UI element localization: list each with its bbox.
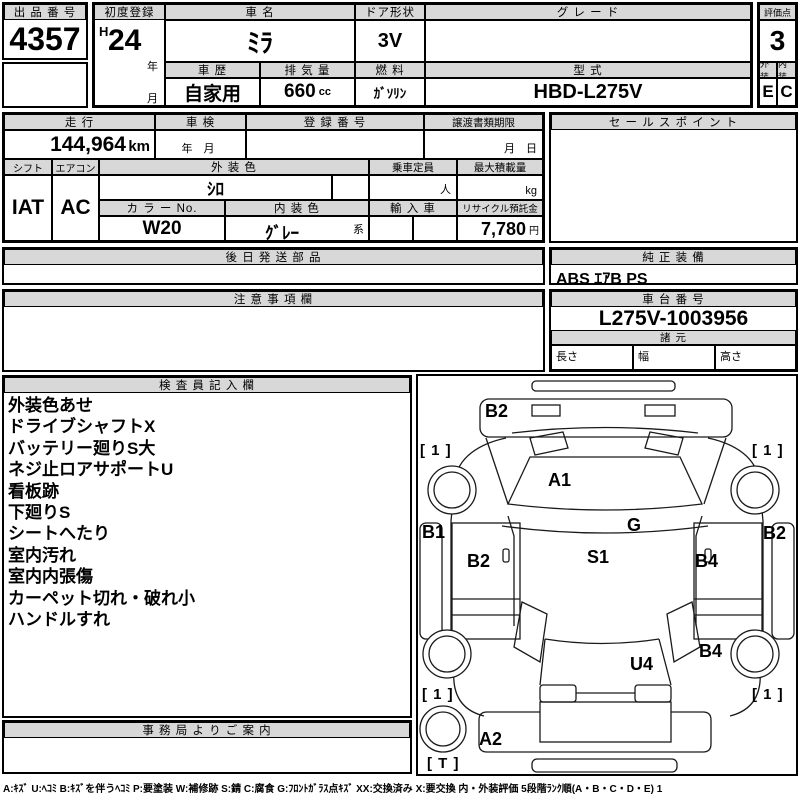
grade-value [425, 20, 751, 62]
history-value: 自家用 [165, 78, 260, 106]
inspection-item: ハンドルすれ [8, 609, 414, 630]
inspection-item: ネジ止ロアサポートU [8, 459, 414, 480]
first-reg-year-unit: 年 [147, 58, 158, 74]
inspection-item: 室内内張傷 [8, 566, 414, 587]
cautions-box: 注 意 事 項 欄 [2, 289, 545, 372]
shaken-label: 車 検 [155, 114, 246, 130]
office-notice-value [4, 738, 410, 772]
inspector-box: 検 査 員 記 入 欄 外装色あせドライブシャフトXバッテリー廻りS大ネジ止ロア… [2, 375, 412, 718]
spec-width-label: 幅 [633, 345, 715, 370]
color-no-value: W20 [99, 216, 225, 241]
damage-mark: B1 [422, 522, 445, 542]
exterior-label: 外装 [759, 62, 777, 78]
door-label: ドア形状 [355, 4, 425, 20]
auction-sheet: 出 品 番 号 4357 初度登録 H 24 年 月 車 名 ﾐﾗ 車 歴 自家… [0, 0, 800, 800]
damage-mark: B4 [699, 641, 722, 661]
first-reg-month-unit: 月 [147, 90, 158, 106]
import-car-label: 輸 入 車 [369, 200, 457, 216]
import-car-cell-2 [413, 216, 457, 241]
damage-diagram-box: B2[ 1 ][ 1 ]A1B1GB2S1B4B2B4U4[ 1 ][ 1 ]A… [416, 374, 798, 776]
model-label: 型 式 [425, 62, 751, 78]
chassis-no-label: 車 台 番 号 [551, 291, 796, 307]
vehicle-header-table: 初度登録 H 24 年 月 車 名 ﾐﾗ 車 歴 自家用 排 気 量 660 c… [92, 2, 753, 108]
inspector-list: 外装色あせドライブシャフトXバッテリー廻りS大ネジ止ロアサポートU看板跡下廻りS… [4, 393, 414, 718]
inspection-item: シートへたり [8, 523, 414, 544]
damage-mark: B2 [485, 401, 508, 421]
cautions-label: 注 意 事 項 欄 [4, 291, 543, 307]
capacity-value: 人 [369, 175, 457, 200]
mileage-value: 144,964 km [4, 130, 155, 159]
recycle-label: リサイクル預託金 [457, 200, 543, 216]
damage-code-legend: A:ｷｽﾞ U:ﾍｺﾐ B:ｷｽﾞを伴うﾍｺﾐ P:要塗装 W:補修跡 S:錆 … [3, 780, 797, 795]
car-name-value: ﾐﾗ [165, 20, 355, 62]
first-reg-value: H 24 年 月 [94, 20, 165, 106]
inspection-item: バッテリー廻りS大 [8, 438, 414, 459]
ext-color-label: 外 装 色 [99, 159, 369, 175]
damage-mark: U4 [630, 654, 653, 674]
specs-label: 諸 元 [551, 330, 796, 345]
office-notice-label: 事 務 局 よ り ご 案 内 [4, 722, 410, 738]
ext-color-extra-cell [332, 175, 369, 200]
sales-point-box: セ ー ル ス ポ イ ン ト [549, 112, 798, 243]
inspection-item: カーペット切れ・破れ小 [8, 588, 414, 609]
mileage-number: 144,964 [50, 133, 126, 157]
recycle-amount: 7,780 [481, 219, 526, 240]
later-parts-label: 後 日 発 送 部 品 [4, 249, 543, 265]
color-no-label: カ ラ ー No. [99, 200, 225, 216]
inspection-item: ドライブシャフトX [8, 416, 414, 437]
inspection-item: 外装色あせ [8, 395, 414, 416]
fuel-value: ｶﾞｿﾘﾝ [355, 78, 425, 106]
inspection-item: 看板跡 [8, 481, 414, 502]
chassis-no-value: L275V-1003956 [551, 307, 796, 330]
inspection-item: 下廻りS [8, 502, 414, 523]
oem-equipment-label: 純 正 装 備 [551, 249, 796, 265]
displacement-unit: cc [319, 86, 331, 98]
damage-mark: A2 [479, 729, 502, 749]
sales-point-label: セ ー ル ス ポ イ ン ト [551, 114, 796, 130]
auction-no-value: 4357 [4, 20, 86, 58]
sales-point-value [551, 130, 796, 241]
recycle-unit: 円 [529, 222, 539, 237]
max-load-value: kg [457, 175, 543, 200]
int-color-label: 内 装 色 [225, 200, 369, 216]
interior-label: 内装 [777, 62, 796, 78]
history-label: 車 歴 [165, 62, 260, 78]
damage-mark: B2 [467, 551, 490, 571]
damage-mark: A1 [548, 470, 571, 490]
auction-no-label: 出 品 番 号 [4, 4, 86, 20]
score-box: 評価点 3 外装 内装 E C [757, 2, 798, 108]
shift-value: IAT [4, 175, 52, 241]
reg-no-value [246, 130, 424, 159]
interior-grade: C [777, 78, 796, 106]
displacement-label: 排 気 量 [260, 62, 355, 78]
first-reg-era: H [99, 24, 108, 39]
chassis-box: 車 台 番 号 L275V-1003956 諸 元 長さ 幅 高さ [549, 289, 798, 372]
damage-mark: B2 [763, 523, 786, 543]
oem-equipment-box: 純 正 装 備 ABS ｴｱB PS [549, 247, 798, 285]
damage-mark: [ 1 ] [752, 442, 784, 459]
info-table: 走 行 144,964 km 車 検 年 月 登 録 番 号 譲渡書類期限 月 … [2, 112, 545, 243]
inspector-label: 検 査 員 記 入 欄 [4, 377, 410, 393]
reg-no-label: 登 録 番 号 [246, 114, 424, 130]
int-color-value: ｸﾞﾚｰ 系 [225, 216, 369, 241]
import-car-cell-1 [369, 216, 413, 241]
mileage-label: 走 行 [4, 114, 155, 130]
int-color-name: ｸﾞﾚｰ [226, 219, 338, 241]
score-value: 3 [759, 20, 796, 62]
transfer-docs-label: 譲渡書類期限 [424, 114, 543, 130]
damage-mark: [ T ] [427, 755, 460, 772]
shaken-value: 年 月 [155, 130, 246, 159]
spec-height-label: 高さ [715, 345, 796, 370]
int-color-suffix: 系 [353, 221, 364, 237]
damage-mark: [ 1 ] [752, 686, 784, 703]
aircon-label: エアコン [52, 159, 99, 175]
aircon-value: AC [52, 175, 99, 241]
office-notice-box: 事 務 局 よ り ご 案 内 [2, 720, 412, 774]
ext-color-value: ｼﾛ [99, 175, 332, 200]
capacity-label: 乗車定員 [369, 159, 457, 175]
door-value: 3V [355, 20, 425, 62]
damage-mark: B4 [695, 551, 718, 571]
car-top-view-diagram: B2[ 1 ][ 1 ]A1B1GB2S1B4B2B4U4[ 1 ][ 1 ]A… [418, 376, 796, 774]
mileage-unit: km [128, 138, 150, 155]
transfer-docs-value: 月 日 [424, 130, 543, 159]
auction-no-box: 出 品 番 号 4357 [2, 2, 88, 60]
first-reg-year: 24 [108, 24, 141, 58]
displacement-number: 660 [284, 81, 316, 103]
cautions-value [4, 307, 543, 370]
fuel-label: 燃 料 [355, 62, 425, 78]
later-parts-value [4, 265, 543, 283]
car-name-label: 車 名 [165, 4, 355, 20]
auction-no-empty-box [2, 62, 88, 108]
model-value: HBD-L275V [425, 78, 751, 106]
first-reg-label: 初度登録 [94, 4, 165, 20]
shift-label: シフト [4, 159, 52, 175]
damage-mark: [ 1 ] [422, 686, 454, 703]
recycle-value: 7,780 円 [457, 216, 543, 241]
grade-label: グ レ ー ド [425, 4, 751, 20]
spec-length-label: 長さ [551, 345, 633, 370]
score-label: 評価点 [759, 4, 796, 20]
displacement-value: 660 cc [260, 78, 355, 106]
oem-equipment-value: ABS ｴｱB PS [551, 265, 796, 283]
damage-mark: G [627, 515, 641, 535]
damage-mark: S1 [587, 547, 609, 567]
later-parts-box: 後 日 発 送 部 品 [2, 247, 545, 285]
max-load-label: 最大積載量 [457, 159, 543, 175]
damage-mark: [ 1 ] [420, 442, 452, 459]
inspection-item: 室内汚れ [8, 545, 414, 566]
exterior-grade: E [759, 78, 777, 106]
